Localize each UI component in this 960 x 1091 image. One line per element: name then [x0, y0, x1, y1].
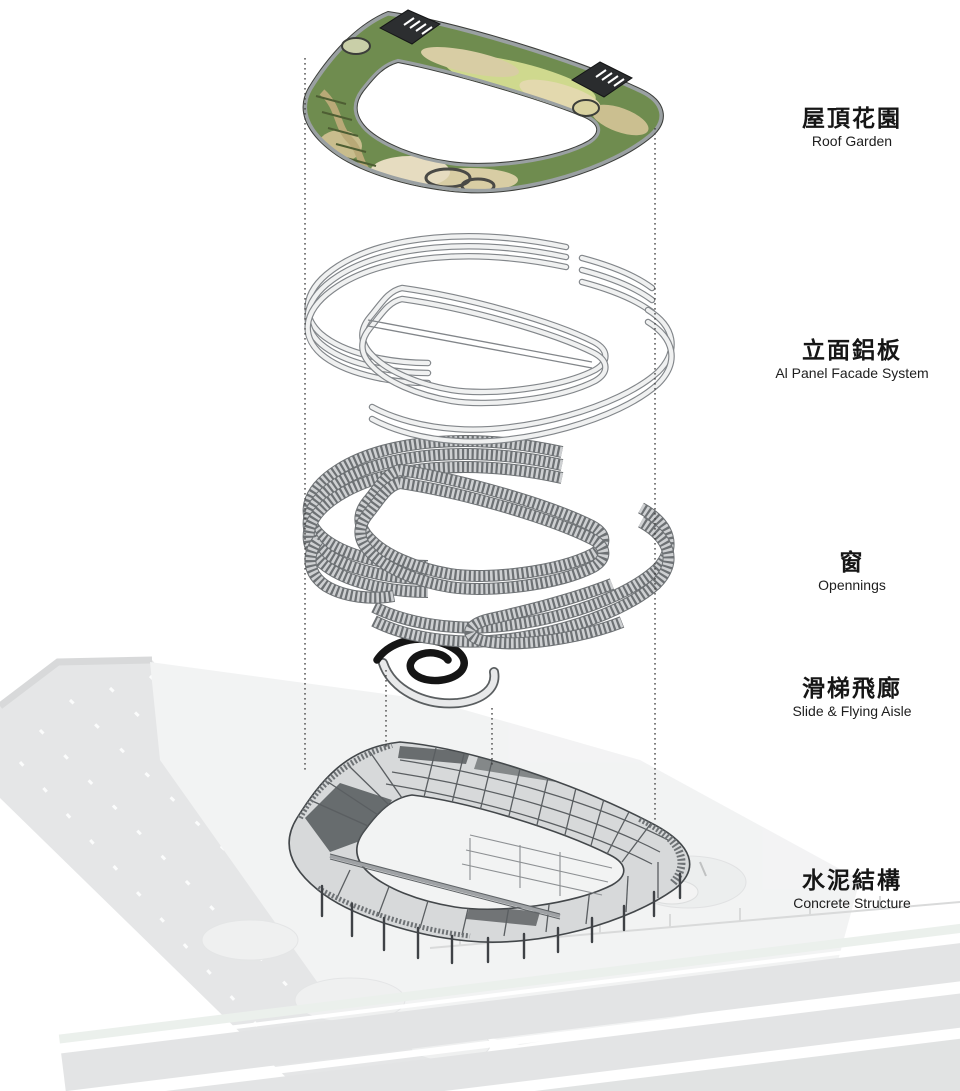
label-openings: 窗 Opennings	[742, 550, 960, 594]
label-slide: 滑梯飛廊 Slide & Flying Aisle	[742, 676, 960, 720]
label-structure-en: Concrete Structure	[742, 895, 960, 912]
label-roof-garden-zh: 屋頂花園	[742, 106, 960, 132]
exploded-diagram-page: 屋頂花園 Roof Garden 立面鋁板 Al Panel Facade Sy…	[0, 0, 960, 1091]
label-slide-en: Slide & Flying Aisle	[742, 703, 960, 720]
label-openings-zh: 窗	[742, 550, 960, 576]
label-structure-zh: 水泥結構	[742, 868, 960, 894]
label-slide-zh: 滑梯飛廊	[742, 676, 960, 702]
label-facade: 立面鋁板 Al Panel Facade System	[742, 338, 960, 382]
roof-garden-layer	[304, 10, 663, 193]
openings-layer	[309, 441, 669, 643]
label-facade-zh: 立面鋁板	[742, 338, 960, 364]
facade-layer	[308, 236, 672, 441]
label-roof-garden-en: Roof Garden	[742, 133, 960, 150]
label-structure: 水泥結構 Concrete Structure	[742, 868, 960, 912]
label-roof-garden: 屋頂花園 Roof Garden	[742, 106, 960, 150]
label-facade-en: Al Panel Facade System	[742, 365, 960, 382]
exploded-diagram-svg	[0, 0, 960, 1091]
slide-layer	[377, 639, 494, 703]
label-openings-en: Opennings	[742, 577, 960, 594]
